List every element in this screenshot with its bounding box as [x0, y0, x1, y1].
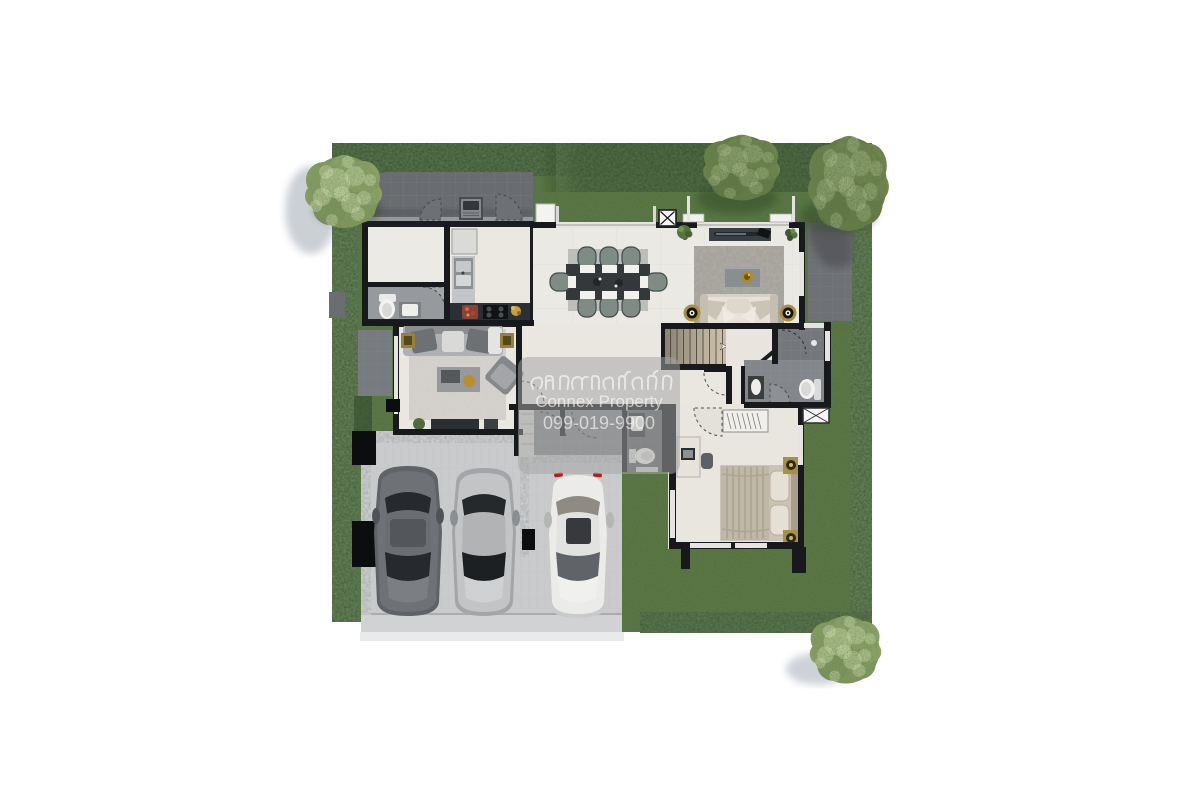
svg-text:099-019-9900: 099-019-9900: [543, 413, 655, 433]
svg-text:Connex Property: Connex Property: [535, 392, 663, 411]
